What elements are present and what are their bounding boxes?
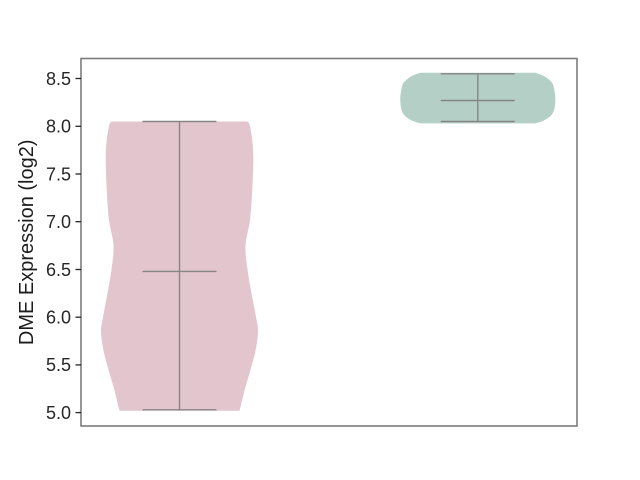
y-tick-label: 5.0 (46, 403, 71, 423)
violin-plot-figure: 5.05.56.06.57.07.58.08.5DME Expression (… (0, 0, 640, 480)
y-tick-label: 6.0 (46, 308, 71, 328)
y-tick-label: 7.5 (46, 164, 71, 184)
y-tick-label: 6.5 (46, 260, 71, 280)
y-axis-label: DME Expression (log2) (16, 139, 38, 345)
y-tick-label: 8.5 (46, 69, 71, 89)
y-tick-label: 7.0 (46, 212, 71, 232)
y-tick-label: 5.5 (46, 355, 71, 375)
violin-chart-canvas: 5.05.56.06.57.07.58.08.5DME Expression (… (0, 0, 640, 480)
y-tick-label: 8.0 (46, 117, 71, 137)
